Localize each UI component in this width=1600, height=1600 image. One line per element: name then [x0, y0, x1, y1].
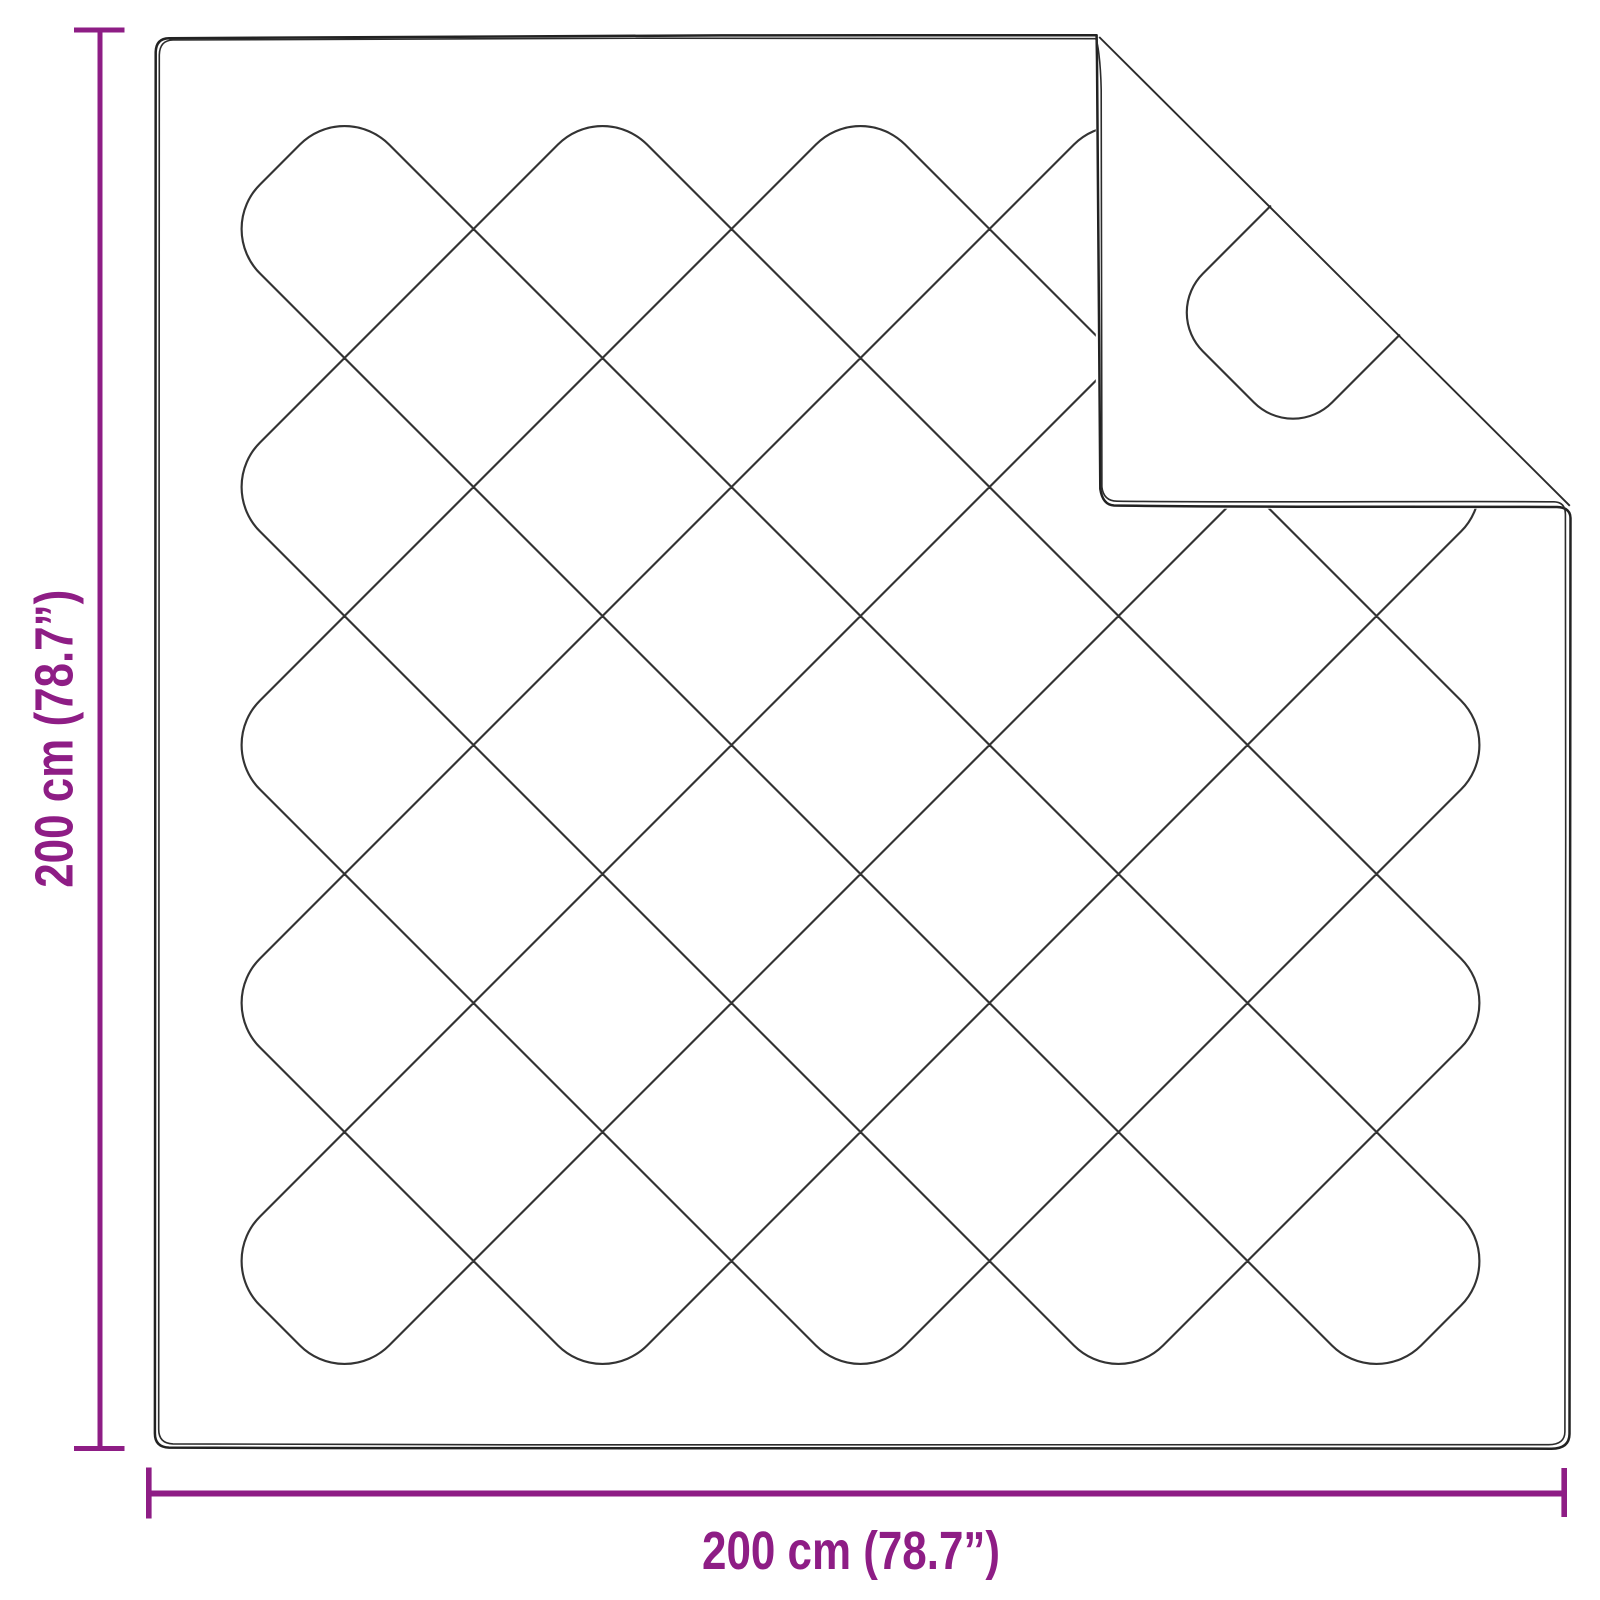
- svg-text:200 cm (78.7”): 200 cm (78.7”): [25, 590, 85, 888]
- svg-text:200 cm (78.7”): 200 cm (78.7”): [702, 1521, 1000, 1581]
